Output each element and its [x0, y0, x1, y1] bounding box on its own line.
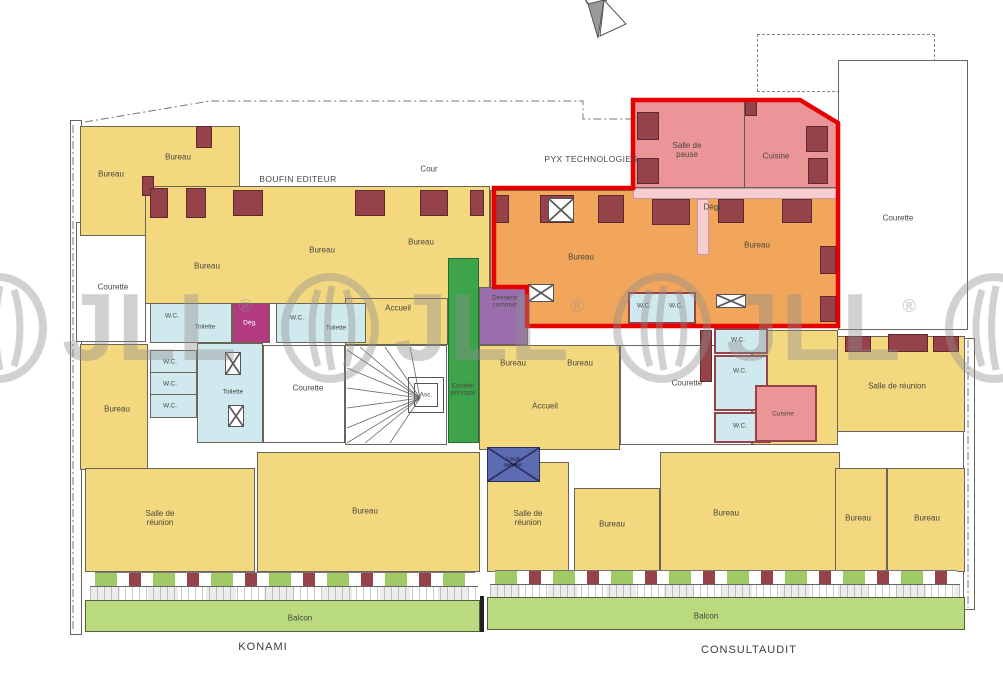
room-label: Escalier principal	[448, 383, 478, 398]
room-label: Bureau	[500, 358, 526, 367]
room-bureau-b3	[660, 452, 840, 572]
wall-pier	[806, 126, 828, 152]
room-wc-toilette-2	[276, 303, 366, 343]
jll-logo-icon	[0, 272, 48, 384]
balcony-left	[85, 600, 480, 632]
room-label: Salle de réunion	[868, 381, 926, 390]
room-label: W.C.	[290, 314, 304, 321]
room-label: Bureau	[845, 513, 871, 522]
floor-plan: Bureau Bureau BOUFIN EDITEUR Cour PYX TE…	[0, 0, 1003, 683]
social-block-partition	[744, 100, 745, 188]
room-label: W.C.	[733, 367, 747, 374]
room-label: Bureau	[408, 237, 434, 246]
room-label: Cuisine	[763, 151, 790, 160]
wall-pier	[652, 199, 690, 225]
room-label: Cour	[420, 164, 437, 173]
wall-pier	[820, 246, 836, 274]
wall-pier	[470, 190, 484, 216]
room-label: Toilette	[223, 388, 244, 395]
room-label: Bureau	[567, 358, 593, 367]
room-label: W.C.	[731, 336, 745, 343]
room-label: Bureau	[599, 519, 625, 528]
room-label: W.C.	[733, 422, 747, 429]
room-label: W.C.	[163, 402, 177, 409]
room-label: Bureau	[98, 169, 124, 178]
wall-pier	[196, 126, 212, 148]
room-label: Courette	[98, 282, 129, 291]
room-label: Bureau	[568, 252, 594, 261]
room-label: W.C.	[637, 302, 651, 309]
room-label: Salle de pause	[670, 141, 704, 159]
wall-pier	[782, 199, 812, 223]
wall-pier	[888, 334, 928, 352]
room-label: Bureau	[352, 506, 378, 515]
room-label: Dég.	[243, 319, 257, 326]
wall-pier	[355, 190, 385, 216]
room-label: W.C.	[163, 358, 177, 365]
company-consultaudit: CONSULTAUDIT	[701, 644, 797, 656]
room-label: Bureau	[744, 240, 770, 249]
room-label: Bureau	[713, 508, 739, 517]
room-label: Salle de réunion	[143, 509, 177, 527]
wall-pier	[493, 195, 509, 223]
balcony-right	[487, 597, 965, 630]
room-label: Balcon	[288, 613, 312, 622]
room-label: Bureau	[104, 404, 130, 413]
awning-strip-right	[495, 570, 957, 585]
room-label: Dégt.	[703, 202, 722, 211]
room-label: Courette	[883, 213, 914, 222]
room-label: Toilette	[326, 324, 347, 331]
room-label: Bureau	[309, 245, 335, 254]
wall-pier	[233, 190, 263, 216]
awning-strip-left	[95, 572, 475, 587]
company-area-label: BOUFIN EDITEUR	[259, 175, 336, 185]
room-escalier-principal	[448, 258, 479, 443]
balcony-divider	[480, 596, 484, 632]
room-label: Desserte commun	[484, 295, 526, 310]
room-label: Bureau	[165, 152, 191, 161]
duct-box	[548, 198, 574, 222]
company-konami: KONAMI	[238, 641, 287, 653]
wall-pier	[933, 336, 959, 352]
courette-toilets	[263, 345, 345, 443]
wall-pier	[598, 195, 624, 223]
lot-corridor	[633, 188, 838, 199]
room-label: Local serveur	[498, 457, 528, 470]
wall-pier	[637, 112, 659, 140]
room-label: Cuisine	[772, 410, 794, 417]
duct-box	[225, 352, 241, 375]
room-label: Balcon	[694, 611, 718, 620]
wall-pier	[820, 296, 836, 322]
room-label: Bureau	[914, 513, 940, 522]
room-label: Bureau	[194, 261, 220, 270]
wall-pier	[808, 158, 828, 184]
room-label: W.C.	[669, 302, 683, 309]
room-bureau-b2	[574, 488, 660, 572]
room-label: W.C.	[165, 312, 179, 319]
wall-pier	[700, 330, 712, 382]
company-area-label: PYX TECHNOLOGIES	[544, 155, 637, 165]
wall-pier	[637, 158, 659, 184]
room-wc-toilette-1	[150, 303, 232, 343]
room-label: W.C.	[163, 380, 177, 387]
room-label: Accueil	[385, 303, 411, 312]
room-label: Salle de réunion	[511, 509, 545, 527]
wall-pier	[420, 190, 448, 216]
courette-right	[838, 60, 968, 330]
room-label: Courette	[293, 383, 324, 392]
room-label: Toilette	[195, 323, 216, 330]
north-arrow-icon	[585, 0, 626, 38]
wall-pier	[150, 188, 168, 218]
wall-pier	[845, 336, 871, 352]
room-label: Accueil	[532, 401, 558, 410]
duct-box	[716, 294, 746, 308]
duct-box	[228, 405, 244, 427]
room-label: Courette	[672, 378, 703, 387]
wall-pier	[745, 100, 757, 116]
duct-box	[528, 284, 554, 302]
room-label: Asc.	[420, 391, 433, 398]
wall-pier	[186, 188, 206, 218]
